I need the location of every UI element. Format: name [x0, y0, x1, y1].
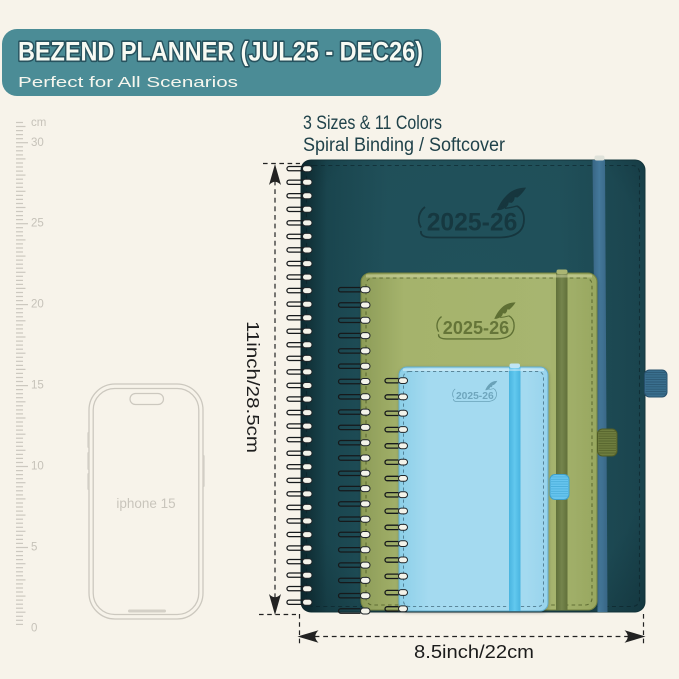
svg-text:30: 30: [31, 137, 44, 149]
svg-text:cm: cm: [31, 117, 46, 129]
svg-text:Spiral Binding / Softcover: Spiral Binding / Softcover: [303, 135, 506, 156]
svg-text:0: 0: [31, 623, 37, 635]
svg-text:8.5inch/22cm: 8.5inch/22cm: [414, 641, 534, 662]
svg-text:3 Sizes & 11 Colors: 3 Sizes & 11 Colors: [303, 113, 442, 134]
svg-text:5: 5: [31, 542, 37, 554]
svg-text:10: 10: [31, 461, 44, 473]
svg-text:iphone 15: iphone 15: [116, 496, 175, 511]
svg-text:25: 25: [31, 218, 44, 230]
svg-text:BEZEND PLANNER (JUL25 - DEC26): BEZEND PLANNER (JUL25 - DEC26): [18, 37, 423, 67]
svg-text:20: 20: [31, 299, 44, 311]
svg-text:15: 15: [31, 380, 44, 392]
svg-text:Perfect for All Scenarios: Perfect for All Scenarios: [18, 74, 238, 91]
svg-text:11inch/28.5cm: 11inch/28.5cm: [243, 321, 263, 453]
